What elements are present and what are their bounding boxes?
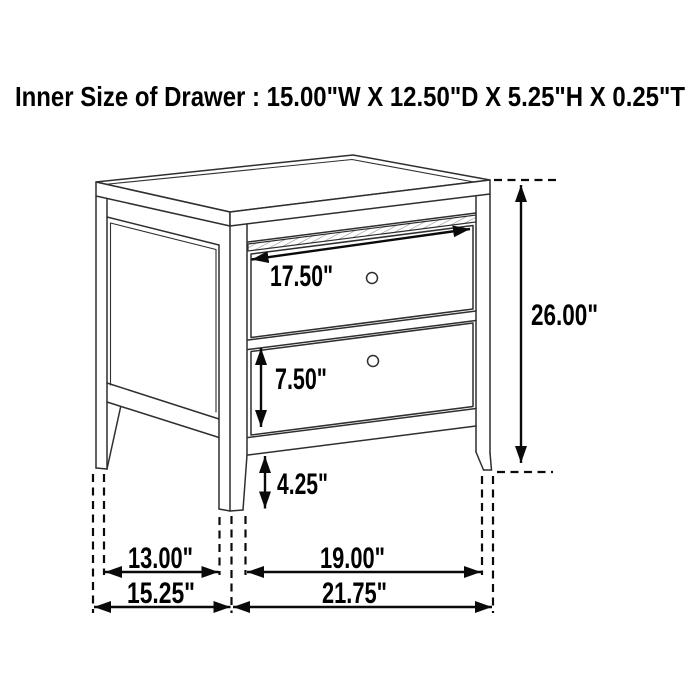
right-leg — [476, 194, 492, 470]
left-side-panel — [96, 196, 219, 469]
side-panel-recess-top — [111, 223, 217, 250]
dim-label-overall-depth: 15.25" — [127, 577, 195, 610]
dim-label-bottom-drawer-height: 7.50" — [275, 363, 327, 396]
side-bottom-rail-bottom — [107, 402, 219, 438]
front-leg — [219, 224, 247, 511]
dim-label-drawer-width: 17.50" — [270, 260, 333, 293]
dim-label-side-leg-span: 13.00" — [128, 542, 193, 575]
side-top-rail-edge — [107, 217, 219, 245]
dim-label-leg-height: 4.25" — [277, 468, 328, 501]
front-leg-foot — [219, 509, 243, 511]
side-bottom-rail-top — [107, 383, 219, 419]
nightstand-dimension-diagram: Inner Size of Drawer : 15.00"W X 12.50"D… — [0, 0, 700, 700]
drawer-bank — [248, 213, 476, 455]
dim-label-overall-height: 26.00" — [531, 299, 598, 332]
back-left-leg-foot — [96, 468, 107, 469]
dim-label-overall-width: 21.75" — [322, 577, 387, 610]
right-leg-taper — [476, 452, 484, 470]
back-left-leg-taper — [107, 408, 121, 470]
diagram-page: Inner Size of Drawer : 15.00"W X 12.50"D… — [0, 0, 700, 700]
page-title: Inner Size of Drawer : 15.00"W X 12.50"D… — [15, 81, 685, 112]
back-left-leg — [96, 408, 121, 470]
front-leg-taper — [243, 455, 247, 510]
right-leg-outer-foot-edge — [490, 453, 492, 470]
dim-label-front-leg-span: 19.00" — [320, 542, 385, 575]
nightstand-line-drawing — [96, 155, 492, 511]
bottom-drawer-knob — [368, 356, 379, 367]
top-drawer-knob — [367, 273, 378, 284]
